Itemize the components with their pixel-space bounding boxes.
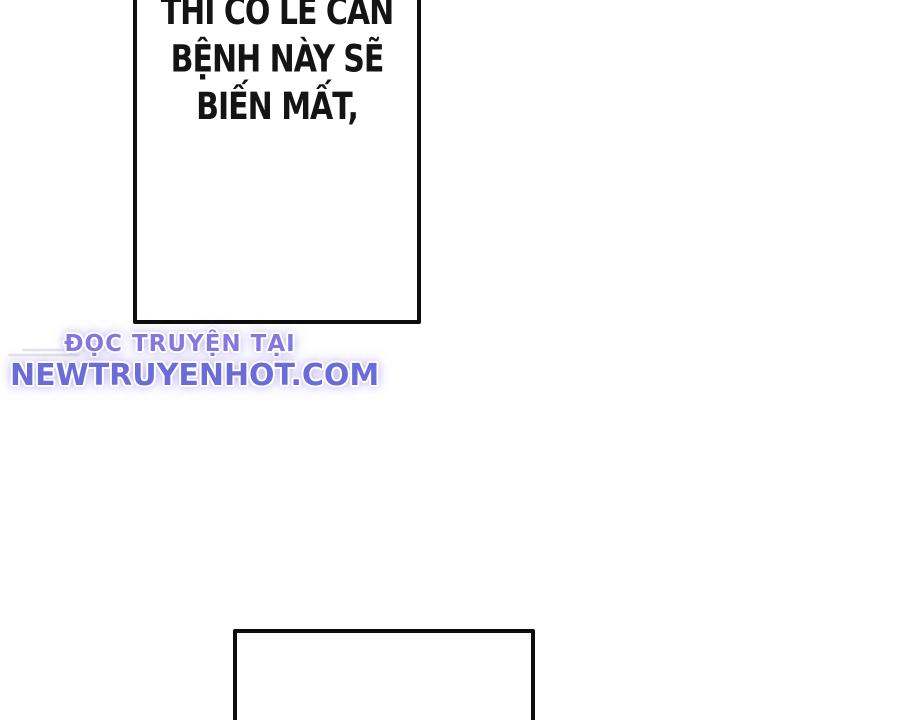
speech-bubble-panel: THÌ CÓ LẼ CĂN BỆNH NÀY SẼ BIẾN MẤT, bbox=[133, 0, 421, 324]
site-watermark: ĐỌC TRUYỆN TẠI NEWTRUYENHOT.COM bbox=[10, 331, 350, 393]
speech-text: THÌ CÓ LẼ CĂN BỆNH NÀY SẼ BIẾN MẤT, bbox=[127, 0, 427, 132]
speech-line-3: BIẾN MẤT, bbox=[127, 84, 427, 132]
comic-page: THÌ CÓ LẼ CĂN BỆNH NÀY SẼ BIẾN MẤT, ĐỌC … bbox=[0, 0, 900, 720]
speech-line-2: BỆNH NÀY SẼ bbox=[127, 37, 427, 85]
empty-panel bbox=[233, 629, 535, 720]
watermark-tagline: ĐỌC TRUYỆN TẠI bbox=[10, 331, 350, 358]
speech-line-1: THÌ CÓ LẼ CĂN bbox=[127, 0, 427, 37]
watermark-site-name: NEWTRUYENHOT.COM bbox=[10, 358, 350, 393]
